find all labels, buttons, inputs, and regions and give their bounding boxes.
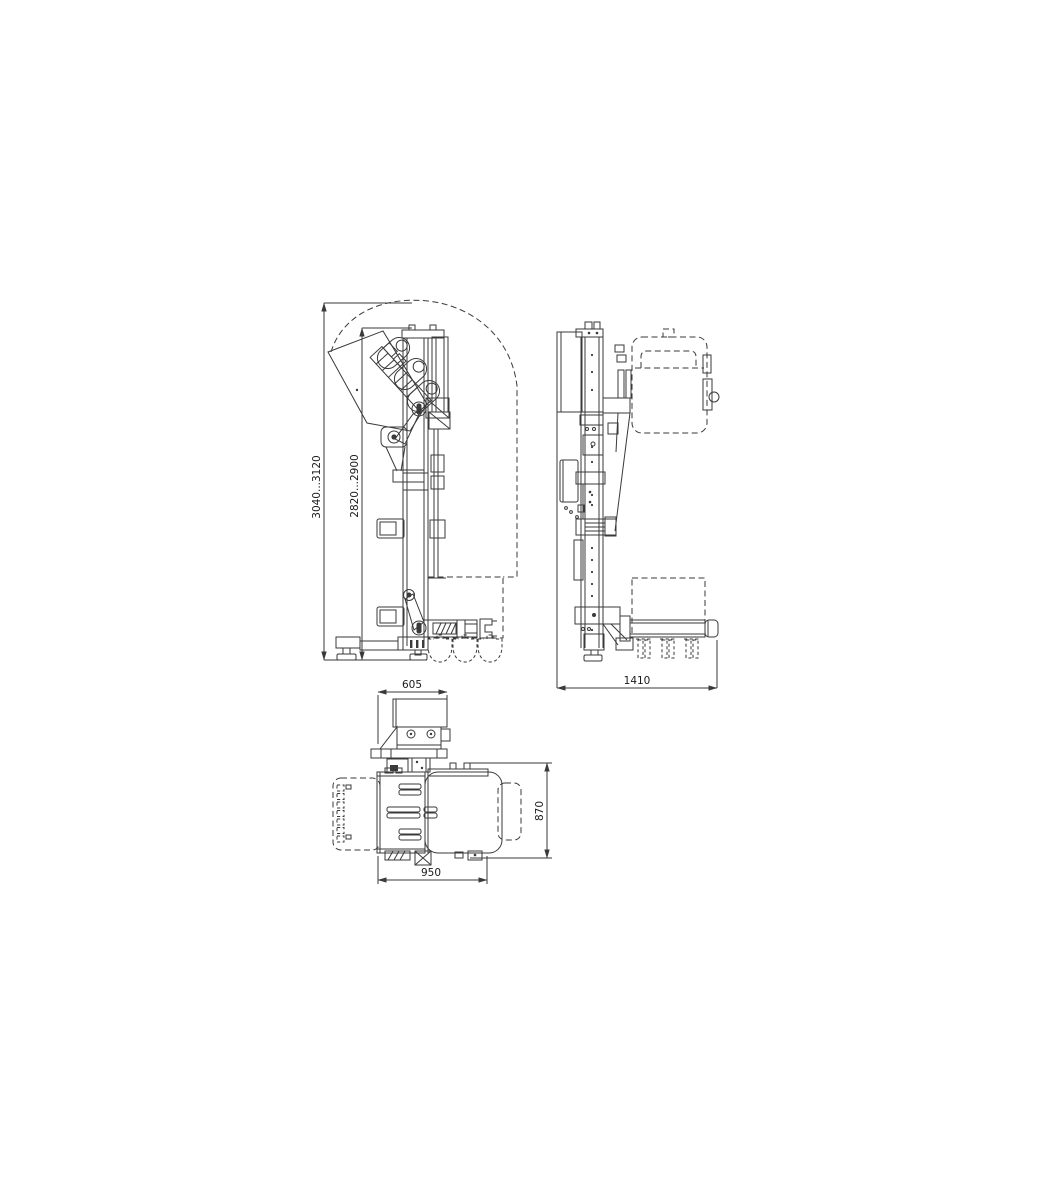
dim-label-front-mast-height: 2820...2900 <box>349 454 361 517</box>
top-dim-605: 605 <box>378 679 447 744</box>
top-pallet-hook-1 <box>346 785 351 789</box>
side-view: 1410 <box>557 322 719 688</box>
top-head-box <box>371 699 450 772</box>
front-clamp-lower <box>377 607 404 626</box>
top-view: 605 870 950 <box>333 679 552 884</box>
dim-label-top-body-width: 950 <box>421 867 441 879</box>
drawing-svg: 3040...3120 2820...2900 <box>0 0 1040 1185</box>
front-view: 3040...3120 2820...2900 <box>311 300 517 662</box>
front-motor-2 <box>390 354 431 394</box>
side-right-fittings <box>703 355 719 410</box>
side-head-bracket <box>603 345 631 531</box>
side-left-attachment <box>560 460 584 518</box>
side-head-plate <box>557 322 603 412</box>
front-guide-rail <box>428 337 450 578</box>
dim-label-side-overall-width: 1410 <box>624 675 651 687</box>
front-suction-cups-dashed <box>428 635 502 662</box>
dim-label-front-overall-height: 3040...3120 <box>311 455 323 518</box>
front-mast <box>398 325 444 660</box>
side-roller <box>620 616 718 641</box>
top-body <box>377 763 502 853</box>
dim-label-top-body-depth: 870 <box>534 801 546 821</box>
side-head-envelope-dashed <box>632 329 707 433</box>
top-dim-870: 870 <box>470 763 552 858</box>
drawing-page: 3040...3120 2820...2900 <box>0 0 1040 1185</box>
top-pallet-zipper-dashed <box>337 785 344 842</box>
side-load-envelope-dashed <box>632 578 705 637</box>
top-pallet-hook-2 <box>346 835 351 839</box>
front-lower-arm <box>404 590 498 639</box>
front-clamp-upper <box>377 519 404 538</box>
side-column <box>580 337 603 648</box>
top-right-envelope-dashed <box>498 783 521 840</box>
dim-label-top-head-width: 605 <box>402 679 422 691</box>
top-pallet-envelope-dashed <box>333 778 380 850</box>
side-fork-tines-dashed <box>636 639 700 658</box>
